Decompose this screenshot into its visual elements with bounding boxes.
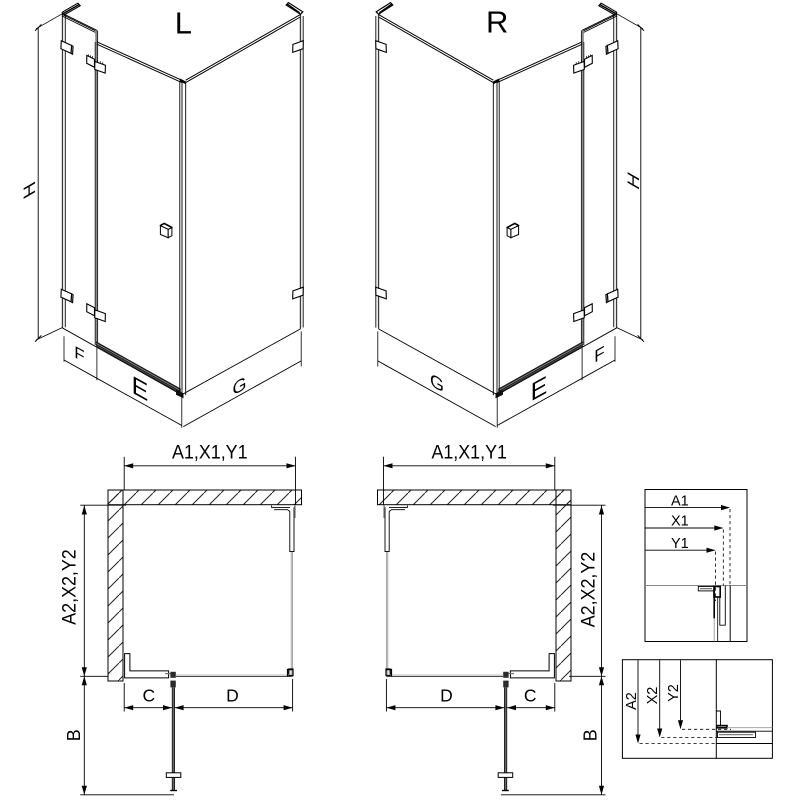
svg-text:C: C (142, 685, 155, 705)
svg-text:D: D (226, 685, 239, 705)
svg-text:X2: X2 (645, 687, 661, 705)
svg-text:B: B (581, 729, 601, 741)
svg-text:B: B (64, 729, 84, 741)
svg-text:A1,X1,Y1: A1,X1,Y1 (431, 443, 507, 464)
svg-text:C: C (524, 685, 537, 705)
svg-text:D: D (440, 685, 453, 705)
svg-text:A2,X2,Y2: A2,X2,Y2 (59, 549, 80, 625)
svg-text:A1,X1,Y1: A1,X1,Y1 (172, 443, 248, 464)
svg-text:A2: A2 (624, 692, 640, 710)
svg-text:L: L (175, 6, 192, 41)
svg-text:A2,X2,Y2: A2,X2,Y2 (579, 552, 600, 628)
svg-text:R: R (486, 4, 508, 39)
svg-text:Y1: Y1 (671, 536, 689, 552)
svg-text:X1: X1 (671, 514, 689, 530)
svg-text:Y2: Y2 (666, 684, 682, 702)
svg-text:A1: A1 (671, 493, 689, 509)
